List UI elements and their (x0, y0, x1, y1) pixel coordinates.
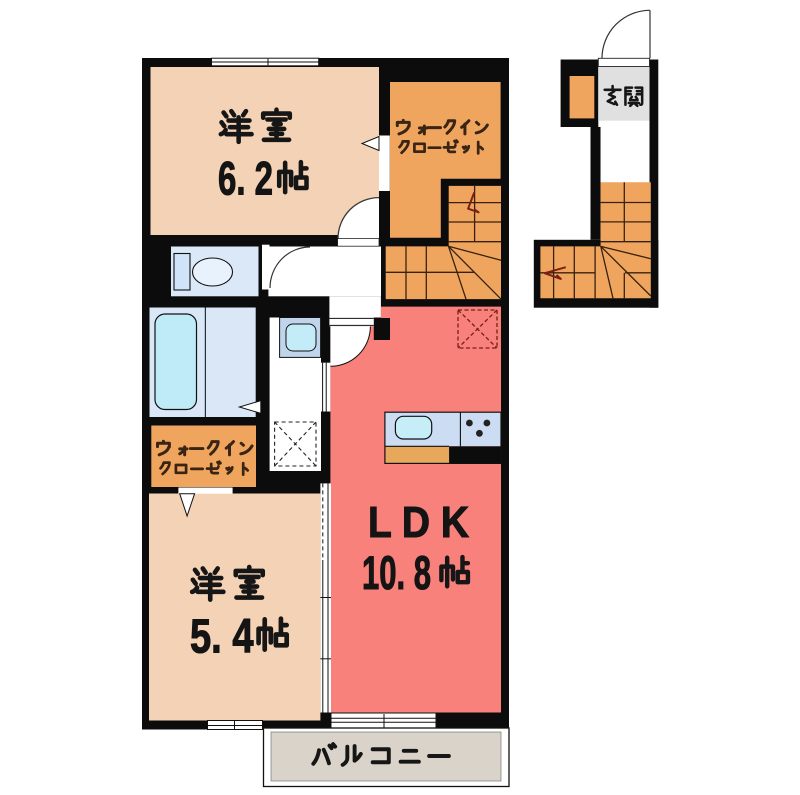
svg-text:L D K: L D K (368, 498, 469, 547)
svg-text:10. 8: 10. 8 (362, 546, 431, 599)
svg-text:6. 2: 6. 2 (218, 151, 273, 204)
svg-text:5. 4: 5. 4 (190, 611, 254, 664)
